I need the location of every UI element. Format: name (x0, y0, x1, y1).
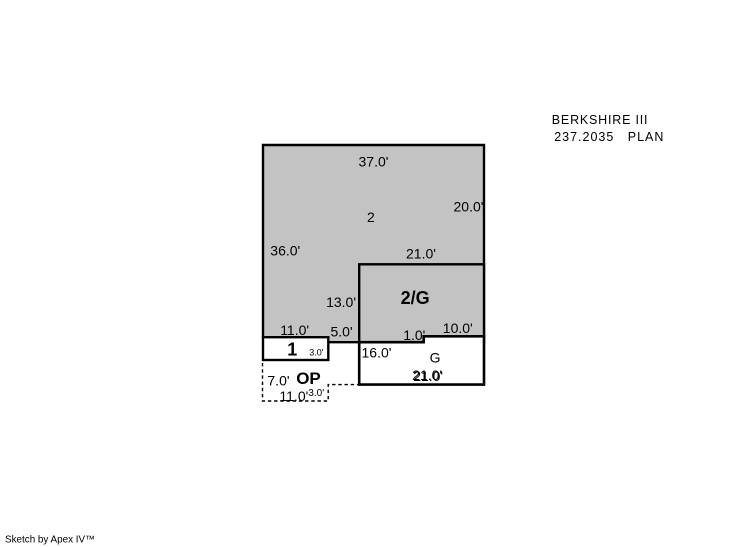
svg-text:11.0': 11.0' (279, 388, 308, 404)
svg-text:20.0': 20.0' (454, 199, 484, 215)
svg-text:3.0': 3.0' (308, 388, 324, 399)
svg-text:5.0': 5.0' (331, 324, 353, 340)
svg-text:OP: OP (296, 369, 321, 388)
svg-text:Sketch by Apex IV™: Sketch by Apex IV™ (5, 535, 95, 546)
svg-text:BERKSHIRE III: BERKSHIRE III (552, 113, 649, 127)
svg-text:21.0': 21.0' (413, 368, 443, 384)
svg-text:3.0': 3.0' (309, 348, 324, 358)
svg-text:37.0': 37.0' (359, 154, 389, 170)
svg-text:237.2035 PLAN: 237.2035 PLAN (554, 130, 664, 144)
svg-text:2/G: 2/G (401, 288, 430, 308)
svg-text:11.0': 11.0' (280, 322, 309, 338)
svg-text:13.0': 13.0' (326, 294, 356, 310)
svg-text:G: G (430, 350, 441, 366)
svg-text:36.0': 36.0' (270, 243, 300, 259)
svg-text:7.0': 7.0' (267, 373, 289, 389)
svg-text:2: 2 (367, 209, 375, 225)
svg-text:10.0': 10.0' (443, 320, 473, 336)
svg-text:21.0': 21.0' (406, 246, 436, 262)
svg-text:1: 1 (287, 339, 297, 359)
svg-text:16.0': 16.0' (362, 345, 392, 361)
svg-text:1.0': 1.0' (403, 327, 425, 343)
